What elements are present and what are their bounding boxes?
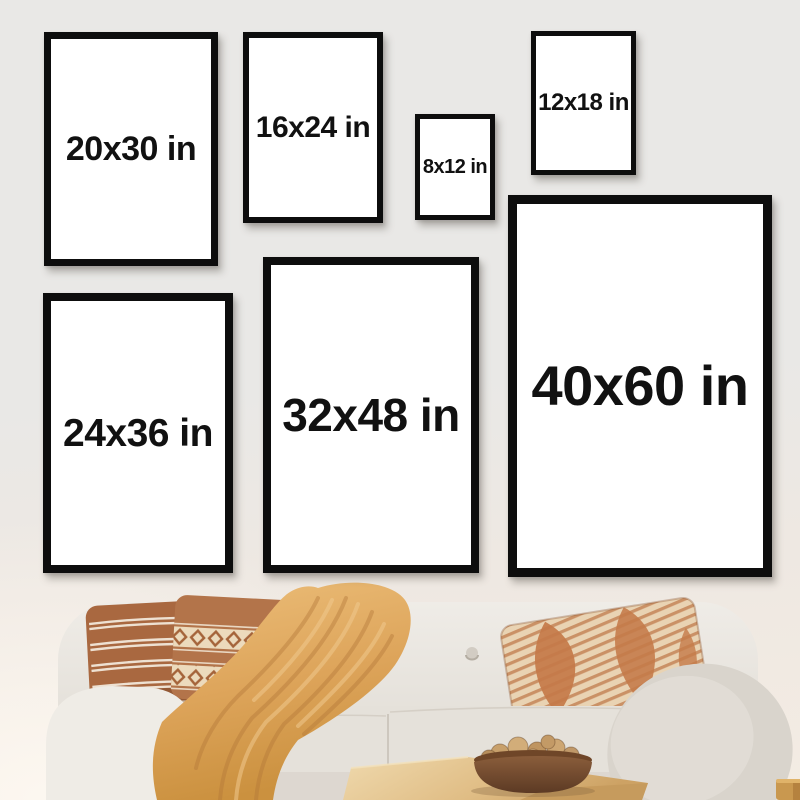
frame-32x48: 32x48 in xyxy=(263,257,479,573)
frame-size-label: 32x48 in xyxy=(282,392,460,438)
frame-size-label: 12x18 in xyxy=(538,91,629,115)
frame-40x60: 40x60 in xyxy=(508,195,772,577)
frame-size-label: 20x30 in xyxy=(66,132,196,166)
frame-size-label: 8x12 in xyxy=(423,157,487,177)
frame-size-label: 24x36 in xyxy=(63,414,213,453)
poster-size-chart-photo: 20x30 in 16x24 in 8x12 in 12x18 in 24x36… xyxy=(0,0,800,800)
frame-24x36: 24x36 in xyxy=(43,293,233,573)
wooden-pot xyxy=(776,779,800,800)
frame-20x30: 20x30 in xyxy=(44,32,218,266)
frame-12x18: 12x18 in xyxy=(531,31,636,175)
living-room-scene xyxy=(0,565,800,800)
frame-size-label: 40x60 in xyxy=(531,358,748,414)
frame-8x12: 8x12 in xyxy=(415,114,495,220)
frame-size-label: 16x24 in xyxy=(256,113,370,143)
frame-16x24: 16x24 in xyxy=(243,32,383,223)
